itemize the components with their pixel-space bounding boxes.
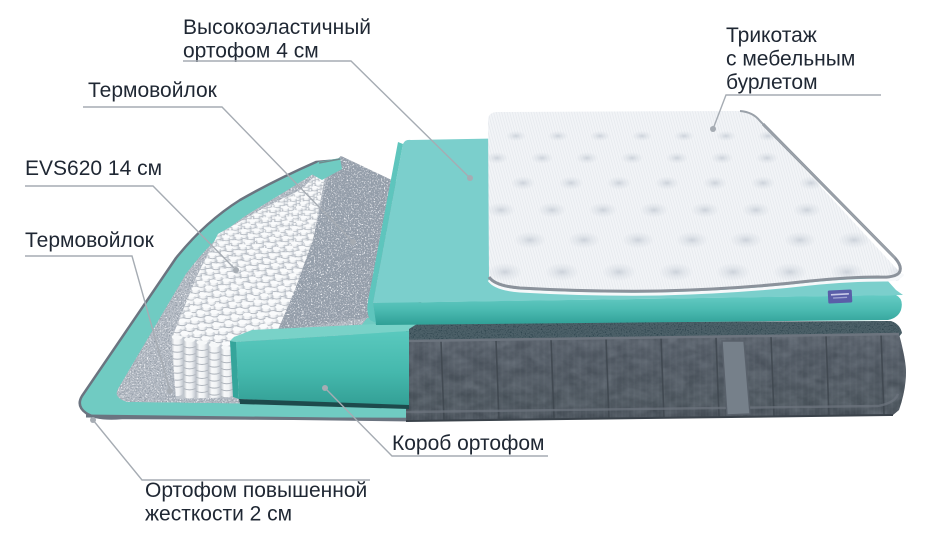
svg-text:с мебельным: с мебельным: [726, 48, 855, 71]
svg-text:Трикотаж: Трикотаж: [726, 24, 817, 47]
svg-text:Короб ортофом: Короб ортофом: [392, 432, 545, 455]
svg-text:Термовойлок: Термовойлок: [25, 229, 155, 252]
svg-text:бурлетом: бурлетом: [726, 71, 818, 94]
svg-text:жесткости 2 см: жесткости 2 см: [145, 503, 292, 526]
svg-text:ортофом 4 см: ортофом 4 см: [183, 40, 319, 63]
svg-text:Термовойлок: Термовойлок: [88, 79, 218, 102]
svg-text:Ортофом повышенной: Ортофом повышенной: [145, 479, 367, 502]
svg-text:Высокоэластичный: Высокоэластичный: [183, 16, 371, 39]
svg-text:EVS620 14 см: EVS620 14 см: [25, 157, 162, 180]
